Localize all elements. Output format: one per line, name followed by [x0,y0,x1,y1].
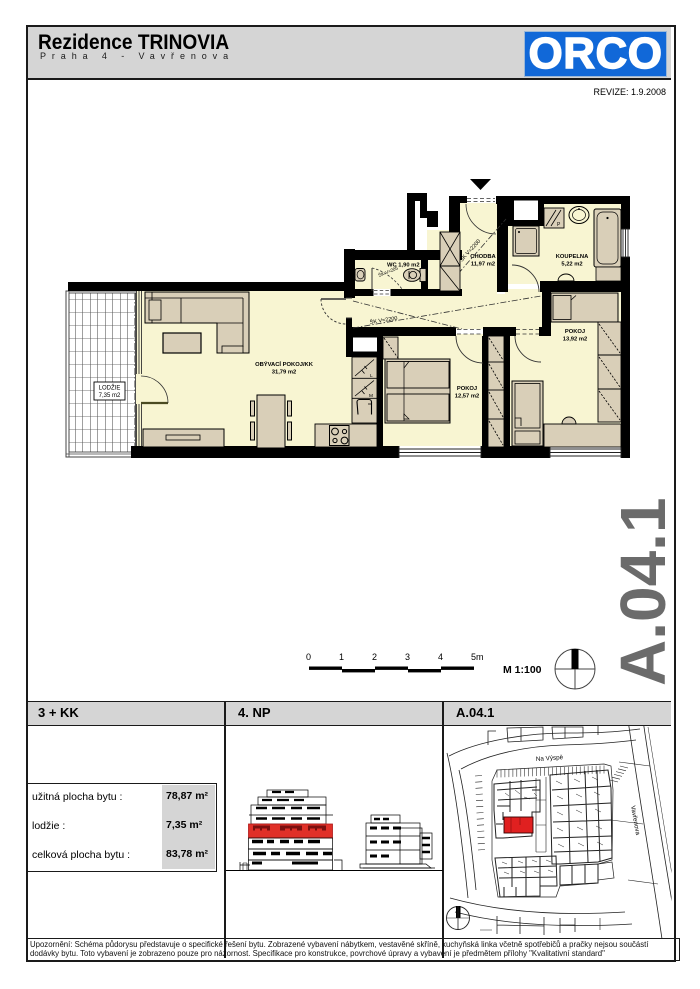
svg-text:LODŽIE: LODŽIE [99,384,121,392]
svg-text:11,97 m2: 11,97 m2 [471,262,495,268]
svg-text:M 1:100: M 1:100 [503,664,542,676]
svg-text:13,92 m2: 13,92 m2 [563,337,588,343]
svg-text:5m: 5m [471,652,484,662]
svg-text:Vavřenova: Vavřenova [629,805,641,836]
svg-text:L: L [370,373,373,379]
svg-text:KOUPELNA: KOUPELNA [556,254,589,260]
svg-text:0: 0 [306,652,311,662]
svg-text:2: 2 [372,652,377,662]
svg-text:POKOJ: POKOJ [457,386,477,392]
svg-text:1: 1 [339,652,344,662]
svg-text:5,22 m2: 5,22 m2 [561,262,582,268]
svg-text:WC 1,90 m2: WC 1,90 m2 [387,263,420,269]
svg-text:POKOJ: POKOJ [565,329,585,335]
svg-text:4: 4 [438,652,443,662]
svg-text:Na Výspě: Na Výspě [536,754,564,763]
svg-text:CHODBA: CHODBA [470,254,496,260]
svg-text:OBÝVACÍ POKOJ/KK: OBÝVACÍ POKOJ/KK [255,360,314,368]
svg-text:31,79 m2: 31,79 m2 [272,370,297,376]
svg-text:3: 3 [405,652,410,662]
svg-text:7,35 m2: 7,35 m2 [99,393,121,399]
svg-text:12,57 m2: 12,57 m2 [455,394,480,400]
svg-text:M: M [369,393,373,399]
